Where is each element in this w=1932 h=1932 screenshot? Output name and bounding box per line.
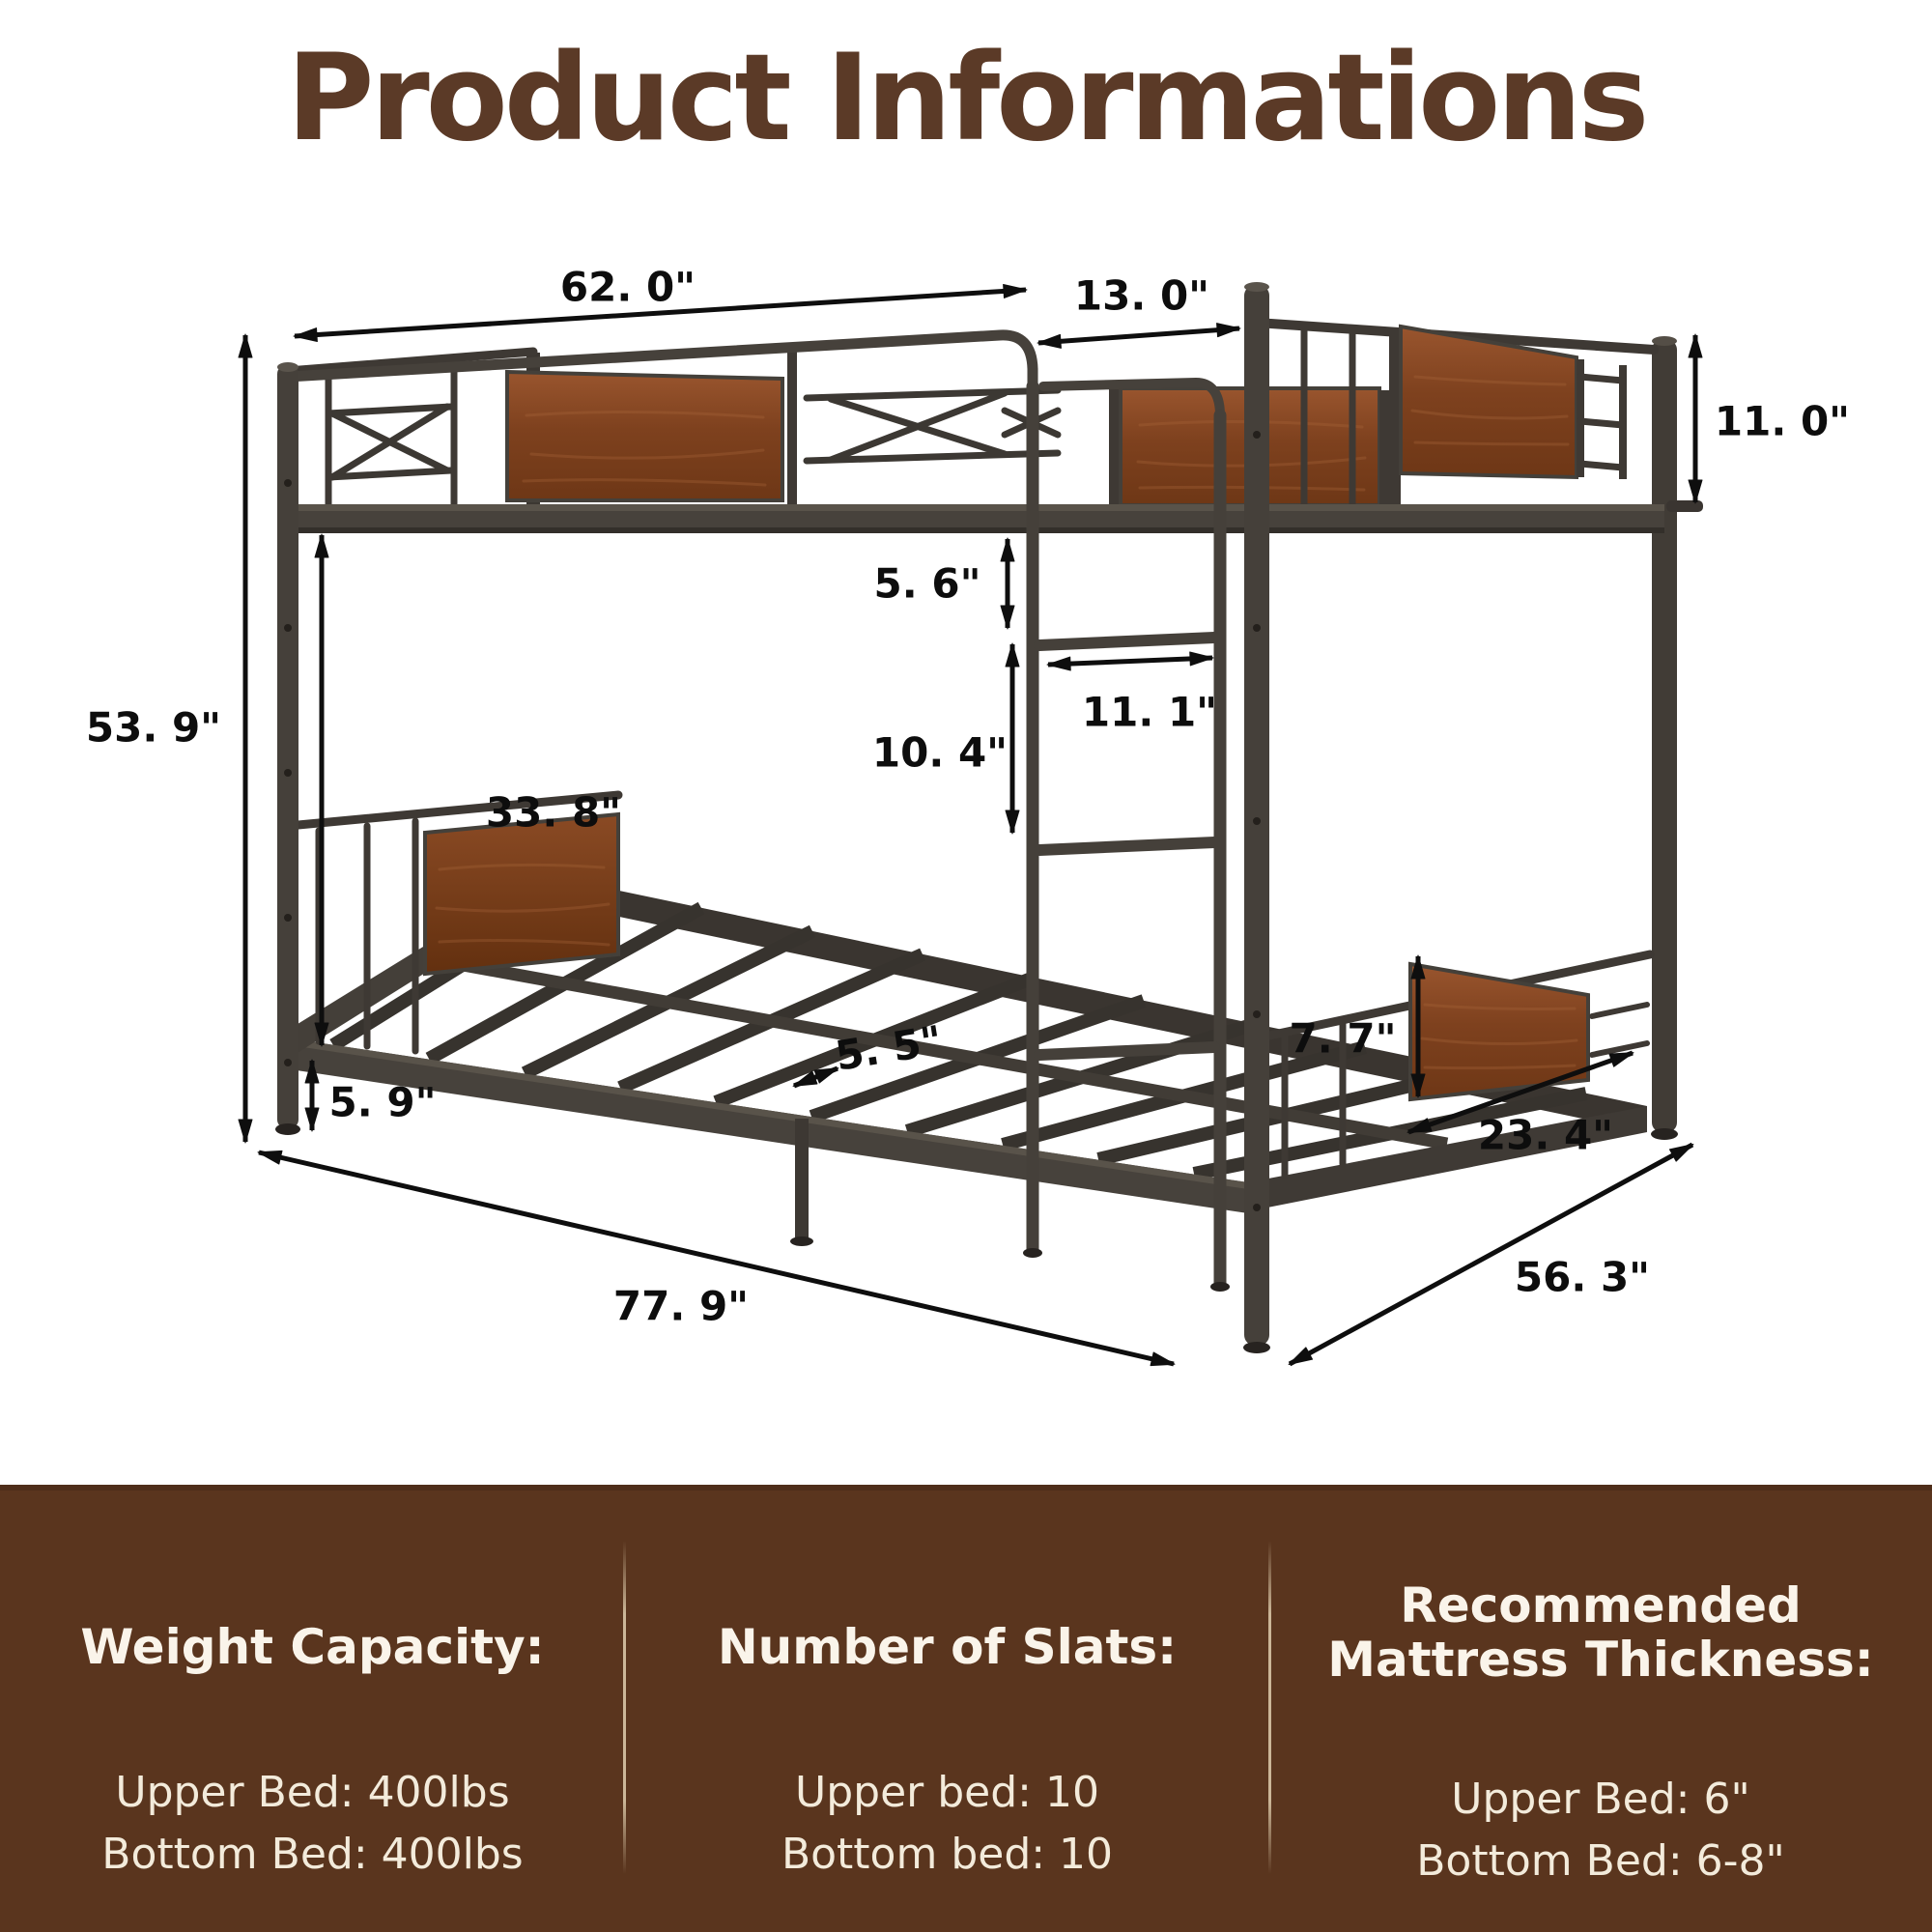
spec-column-mattress-thickness: Recommended Mattress Thickness: Upper Be… <box>1269 1485 1932 1932</box>
dim-label-rail-height: 11. 0" <box>1715 398 1850 445</box>
guardrail-x-decor-mid <box>807 390 1058 461</box>
ladder-side-post <box>1244 285 1269 1346</box>
number-of-slats-items: Upper bed: 10 Bottom bed: 10 <box>625 1762 1269 1886</box>
dim-label-step-top-gap: 5. 6" <box>874 560 981 608</box>
bottom-bed <box>277 795 1650 1246</box>
spec-item: Bottom Bed: 400lbs <box>0 1824 625 1886</box>
spec-column-number-of-slats: Number of Slats: Upper bed: 10 Bottom be… <box>625 1485 1269 1932</box>
bottom-headboard-wood-panel <box>425 814 618 974</box>
dim-label-total-length: 77. 9" <box>613 1283 749 1330</box>
panel-divider-1 <box>623 1541 626 1874</box>
upper-footboard-wood-panel <box>1401 327 1577 477</box>
dim-label-footboard-panel-width: 23. 4" <box>1478 1112 1613 1159</box>
arrow-ladder-width <box>1048 658 1212 665</box>
guardrail-x-decor-left <box>328 407 451 477</box>
dim-label-ladder-width: 11. 1" <box>1082 689 1217 736</box>
panel-divider-2 <box>1268 1541 1271 1874</box>
dim-label-total-height: 53. 9" <box>86 704 221 752</box>
dim-label-bunk-clearance: 33. 8" <box>486 789 621 837</box>
mattress-thickness-items: Upper Bed: 6" Bottom Bed: 6-8" <box>1269 1769 1932 1892</box>
ladder-rung-2 <box>1039 842 1214 850</box>
spec-panel: Weight Capacity: Upper Bed: 400lbs Botto… <box>0 1485 1932 1932</box>
mattress-thickness-heading: Recommended Mattress Thickness: <box>1269 1578 1932 1687</box>
number-of-slats-heading: Number of Slats: <box>625 1620 1269 1674</box>
spec-item: Bottom bed: 10 <box>625 1824 1269 1886</box>
weight-capacity-items: Upper Bed: 400lbs Bottom Bed: 400lbs <box>0 1762 625 1886</box>
bottom-mid-leg <box>795 1119 809 1239</box>
head-front-post-foot <box>275 1123 300 1135</box>
dim-label-total-depth: 56. 3" <box>1515 1254 1650 1301</box>
guardrail-frame-bar <box>787 349 797 504</box>
spec-column-weight-capacity: Weight Capacity: Upper Bed: 400lbs Botto… <box>0 1485 625 1932</box>
weight-capacity-heading: Weight Capacity: <box>0 1620 625 1674</box>
dim-label-ladder-offset: 13. 0" <box>1074 272 1209 320</box>
spec-item: Upper Bed: 400lbs <box>0 1762 625 1824</box>
dim-label-ground-clearance: 5. 9" <box>329 1079 437 1126</box>
ladder-rung-1 <box>1039 638 1214 645</box>
foot-rear-post <box>1652 340 1677 1132</box>
ladder-side-post-foot <box>1243 1342 1270 1353</box>
ladder-rung-3 <box>1039 1047 1214 1055</box>
spec-item: Upper Bed: 6" <box>1269 1769 1932 1831</box>
product-information-sheet: Product Informations <box>0 0 1932 1932</box>
dim-label-top-width: 62. 0" <box>560 264 696 311</box>
dim-label-footboard-panel-height: 7. 7" <box>1290 1015 1397 1063</box>
dim-label-rung-spacing: 10. 4" <box>872 729 1008 777</box>
spec-item: Bottom Bed: 6-8" <box>1269 1831 1932 1892</box>
spec-item: Upper bed: 10 <box>625 1762 1269 1824</box>
foot-rear-post-foot <box>1651 1128 1678 1140</box>
arrow-ladder-offset <box>1038 328 1239 343</box>
